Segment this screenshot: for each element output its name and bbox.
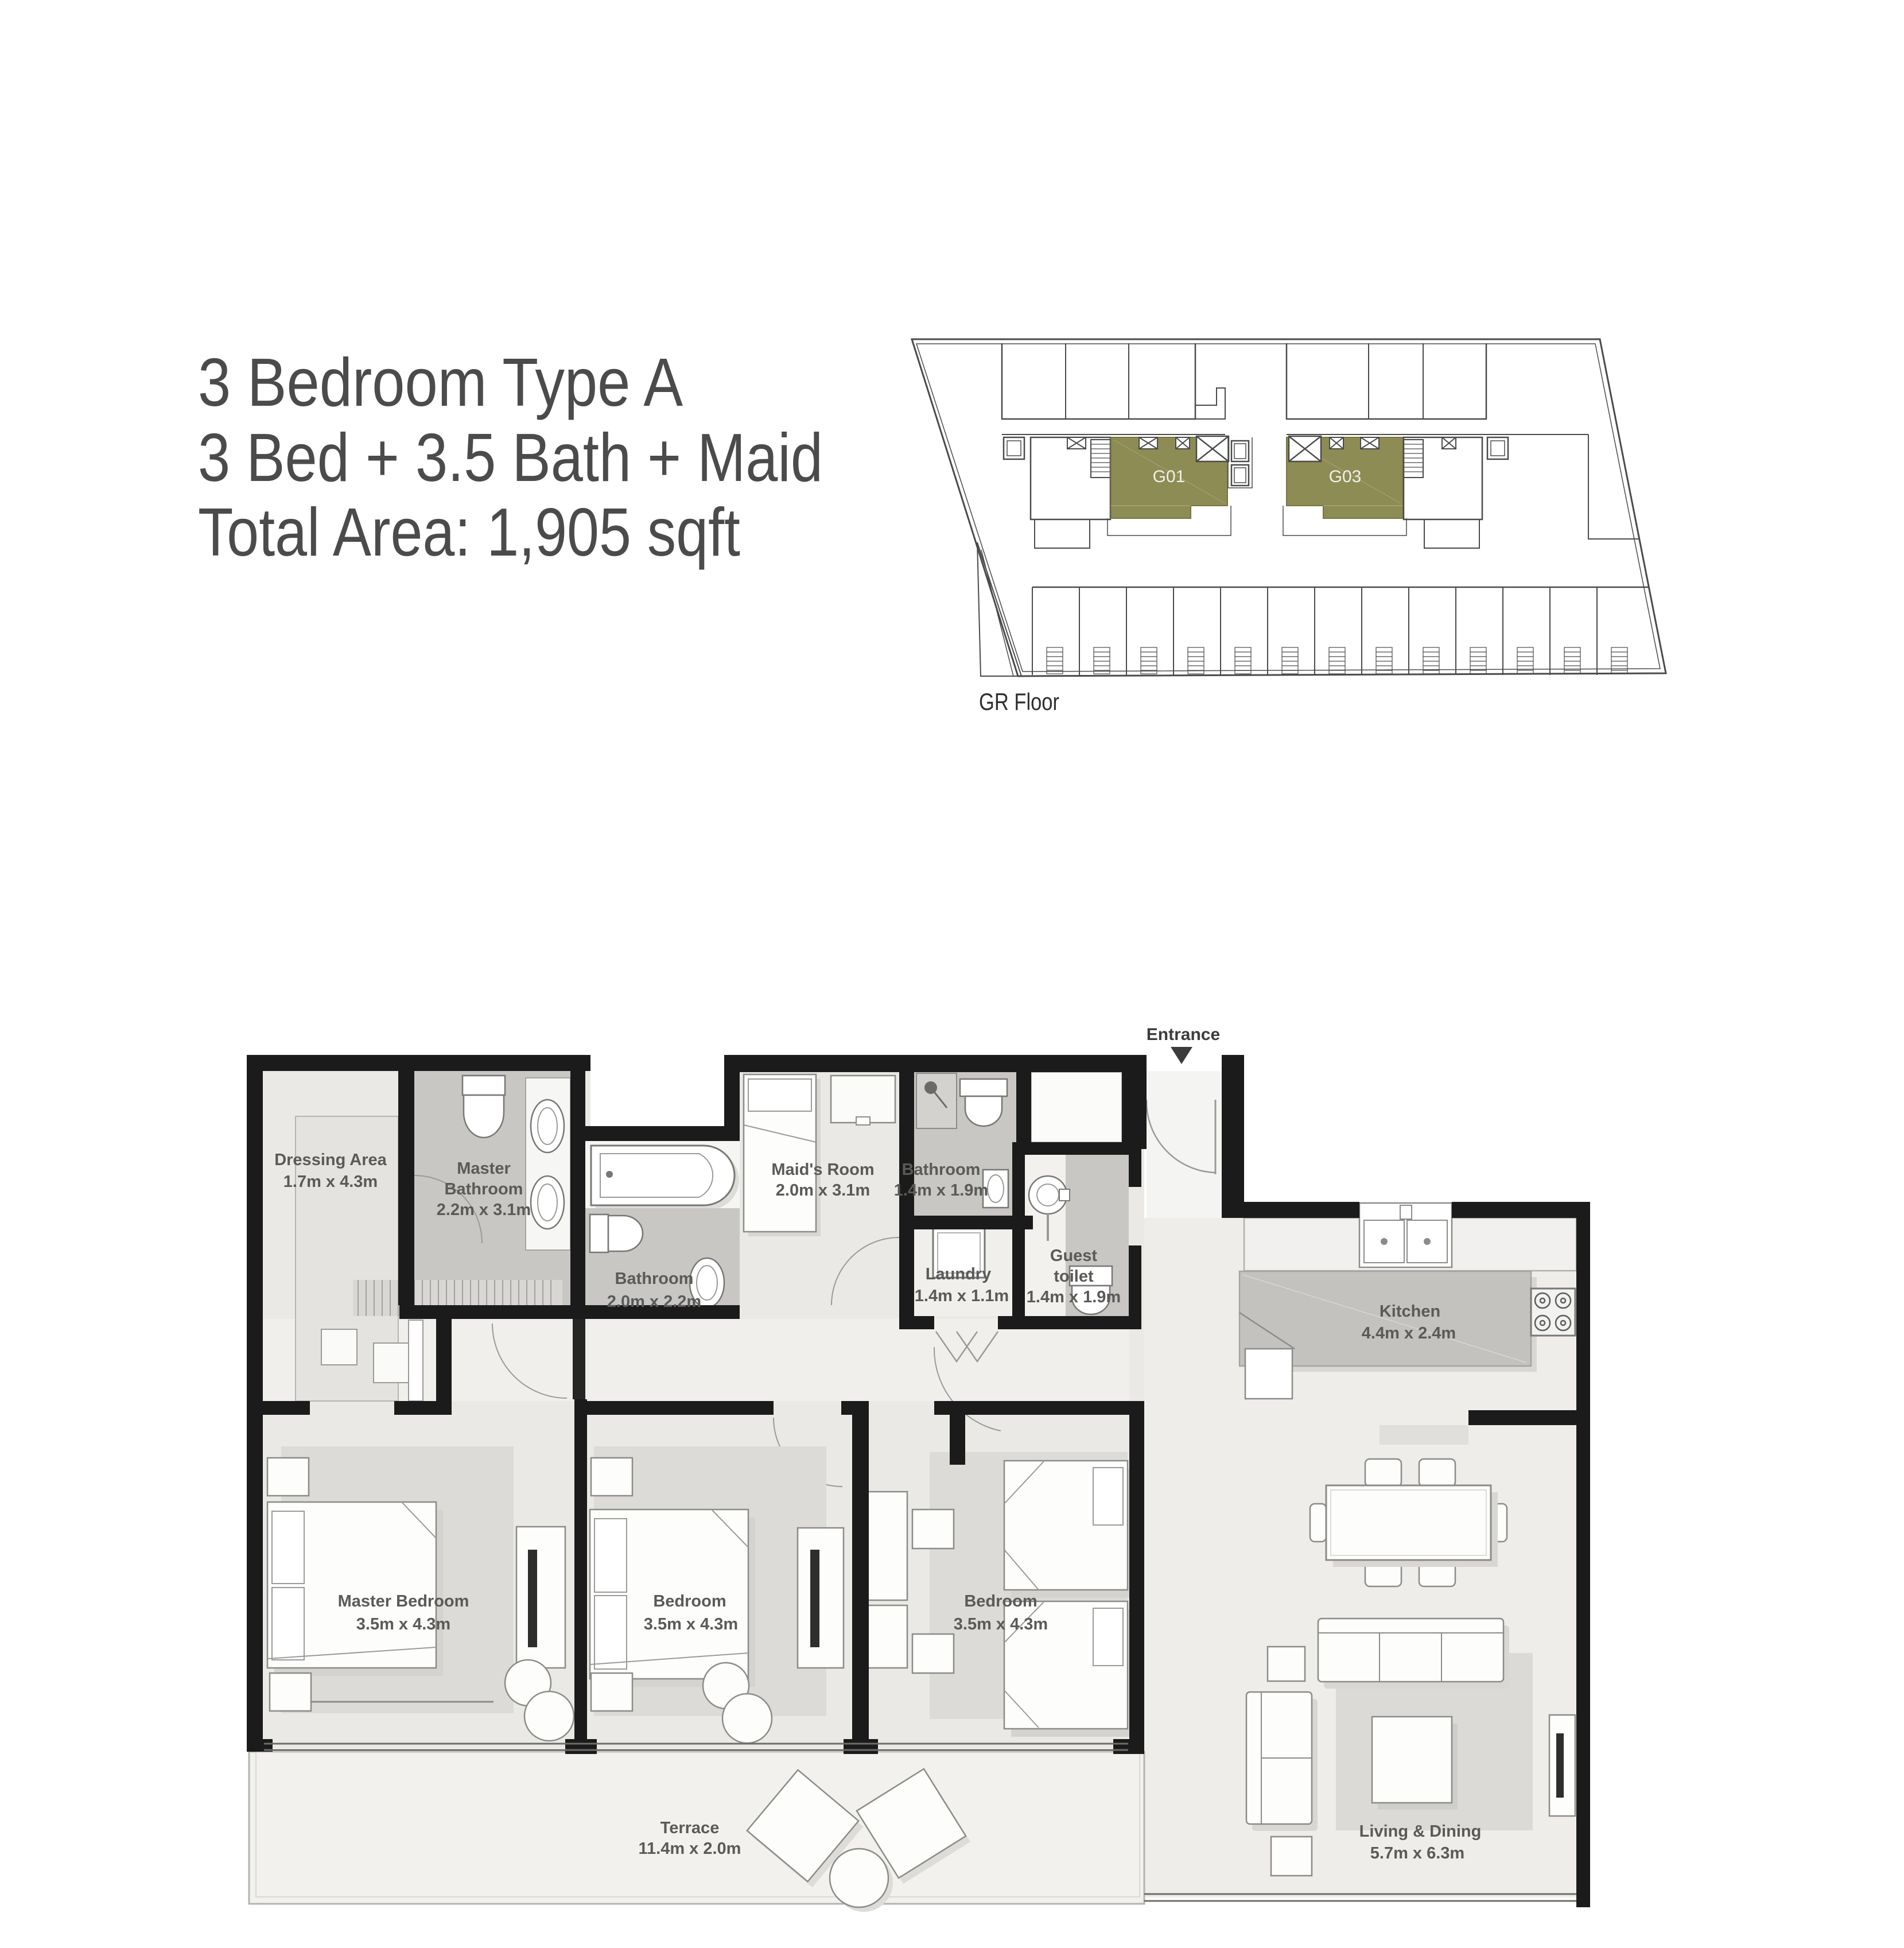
svg-text:Bathroom: Bathroom [902, 1161, 981, 1179]
svg-text:Entrance: Entrance [1147, 1025, 1220, 1044]
svg-text:2.2m x 3.1m: 2.2m x 3.1m [437, 1201, 531, 1219]
svg-text:1.4m x 1.9m: 1.4m x 1.9m [1027, 1288, 1121, 1306]
svg-text:Guest: Guest [1050, 1247, 1098, 1265]
svg-text:11.4m x 2.0m: 11.4m x 2.0m [639, 1840, 741, 1858]
svg-text:Master: Master [457, 1159, 511, 1178]
svg-text:Living & Dining: Living & Dining [1359, 1822, 1482, 1841]
svg-text:Laundry: Laundry [926, 1265, 991, 1283]
svg-text:Terrace: Terrace [660, 1819, 720, 1837]
svg-text:toilet: toilet [1054, 1267, 1094, 1286]
svg-text:2.0m x 3.1m: 2.0m x 3.1m [776, 1181, 870, 1200]
svg-text:G03: G03 [1329, 467, 1362, 486]
svg-text:1.4m x 1.9m: 1.4m x 1.9m [894, 1181, 988, 1200]
svg-text:3 Bed + 3.5 Bath + Maid: 3 Bed + 3.5 Bath + Maid [198, 420, 823, 496]
svg-text:1.7m x 4.3m: 1.7m x 4.3m [283, 1173, 378, 1191]
svg-text:1.4m x 1.1m: 1.4m x 1.1m [915, 1287, 1009, 1305]
svg-text:Dressing Area: Dressing Area [274, 1151, 387, 1169]
svg-text:5.7m x 6.3m: 5.7m x 6.3m [1370, 1844, 1464, 1862]
svg-text:Bedroom: Bedroom [964, 1592, 1037, 1611]
svg-text:3 Bedroom Type A: 3 Bedroom Type A [198, 344, 683, 421]
svg-text:GR Floor: GR Floor [979, 688, 1059, 715]
svg-text:2.0m x 2.2m: 2.0m x 2.2m [607, 1293, 701, 1311]
svg-text:Bathroom: Bathroom [445, 1180, 523, 1198]
svg-text:Total Area: 1,905 sqft: Total Area: 1,905 sqft [198, 494, 740, 571]
svg-text:3.5m x 4.3m: 3.5m x 4.3m [954, 1615, 1048, 1633]
svg-text:Maid's Room: Maid's Room [771, 1161, 874, 1179]
svg-text:Kitchen: Kitchen [1380, 1302, 1440, 1321]
svg-text:Master Bedroom: Master Bedroom [338, 1592, 469, 1611]
svg-text:3.5m x 4.3m: 3.5m x 4.3m [644, 1615, 738, 1633]
svg-text:3.5m x 4.3m: 3.5m x 4.3m [356, 1615, 450, 1633]
svg-text:Bathroom: Bathroom [615, 1270, 694, 1288]
svg-text:Bedroom: Bedroom [653, 1592, 726, 1611]
svg-text:G01: G01 [1153, 467, 1186, 486]
svg-text:4.4m x 2.4m: 4.4m x 2.4m [1362, 1324, 1456, 1342]
